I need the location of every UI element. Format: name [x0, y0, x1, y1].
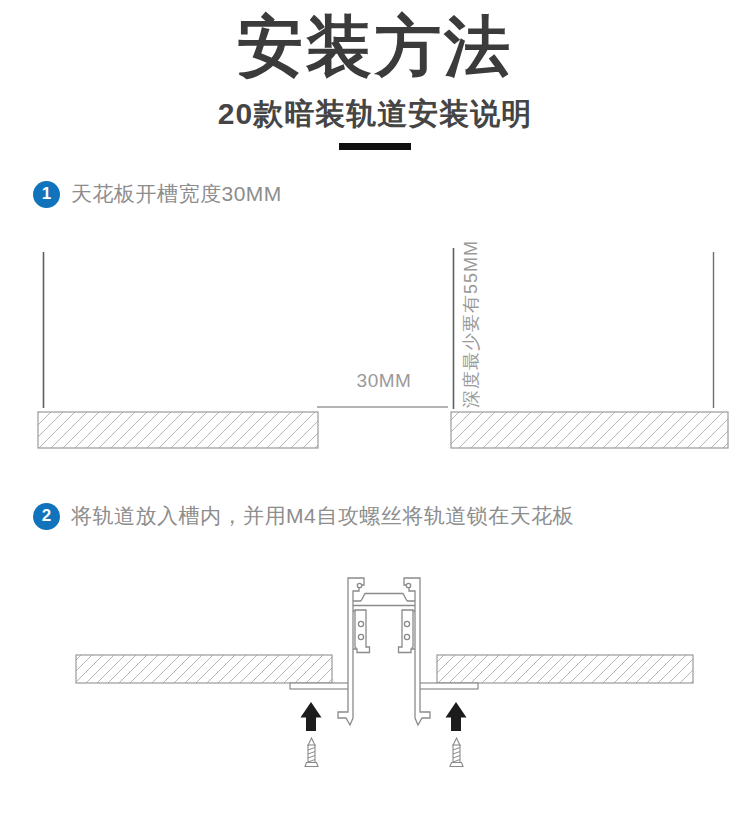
track-installation-diagram	[0, 560, 750, 819]
slot-depth-dimension-label: 深度最少要有55MM	[459, 240, 483, 408]
track-flange-left	[290, 683, 349, 689]
track-rail-trapezoid	[361, 594, 407, 602]
ceiling-board-left	[38, 412, 318, 448]
rib-hole	[404, 621, 409, 626]
step-2-row: 2 将轨道放入槽内，并用M4自攻螺丝将轨道锁在天花板	[33, 502, 574, 530]
up-arrow-icon-right	[446, 702, 467, 731]
page-title: 安装方法	[0, 4, 750, 88]
step-2-badge-icon: 2	[33, 503, 60, 530]
track-inner-rib-right	[399, 610, 414, 653]
claw-notch-left	[357, 583, 361, 587]
up-arrow-icon-left	[301, 702, 322, 731]
track-inner-rib-left	[355, 610, 370, 653]
step-1-row: 1 天花板开槽宽度30MM	[33, 180, 282, 208]
ceiling-board-right	[437, 655, 693, 683]
slot-width-dimension-label: 30MM	[341, 370, 427, 392]
step-2-label: 将轨道放入槽内，并用M4自攻螺丝将轨道锁在天花板	[71, 502, 574, 530]
rib-hole	[404, 634, 409, 639]
ceiling-slot-diagram	[0, 235, 750, 465]
rib-hole	[358, 634, 363, 639]
title-divider-bar	[339, 143, 411, 150]
step-1-label: 天花板开槽宽度30MM	[71, 180, 282, 208]
rib-hole	[358, 621, 363, 626]
screw-icon-right	[450, 738, 463, 767]
track-profile	[338, 578, 430, 725]
installation-instructions-page: 安装方法 20款暗装轨道安装说明 1 天花板开槽宽度30MM 30MM 深度最少…	[0, 0, 750, 819]
track-flange-right	[419, 683, 478, 689]
ceiling-board-left	[76, 655, 332, 683]
ceiling-board-right	[451, 412, 728, 448]
step-1-badge-icon: 1	[33, 181, 60, 208]
page-subtitle: 20款暗装轨道安装说明	[0, 94, 750, 134]
claw-notch-right	[406, 583, 410, 587]
screw-icon-left	[305, 738, 318, 767]
